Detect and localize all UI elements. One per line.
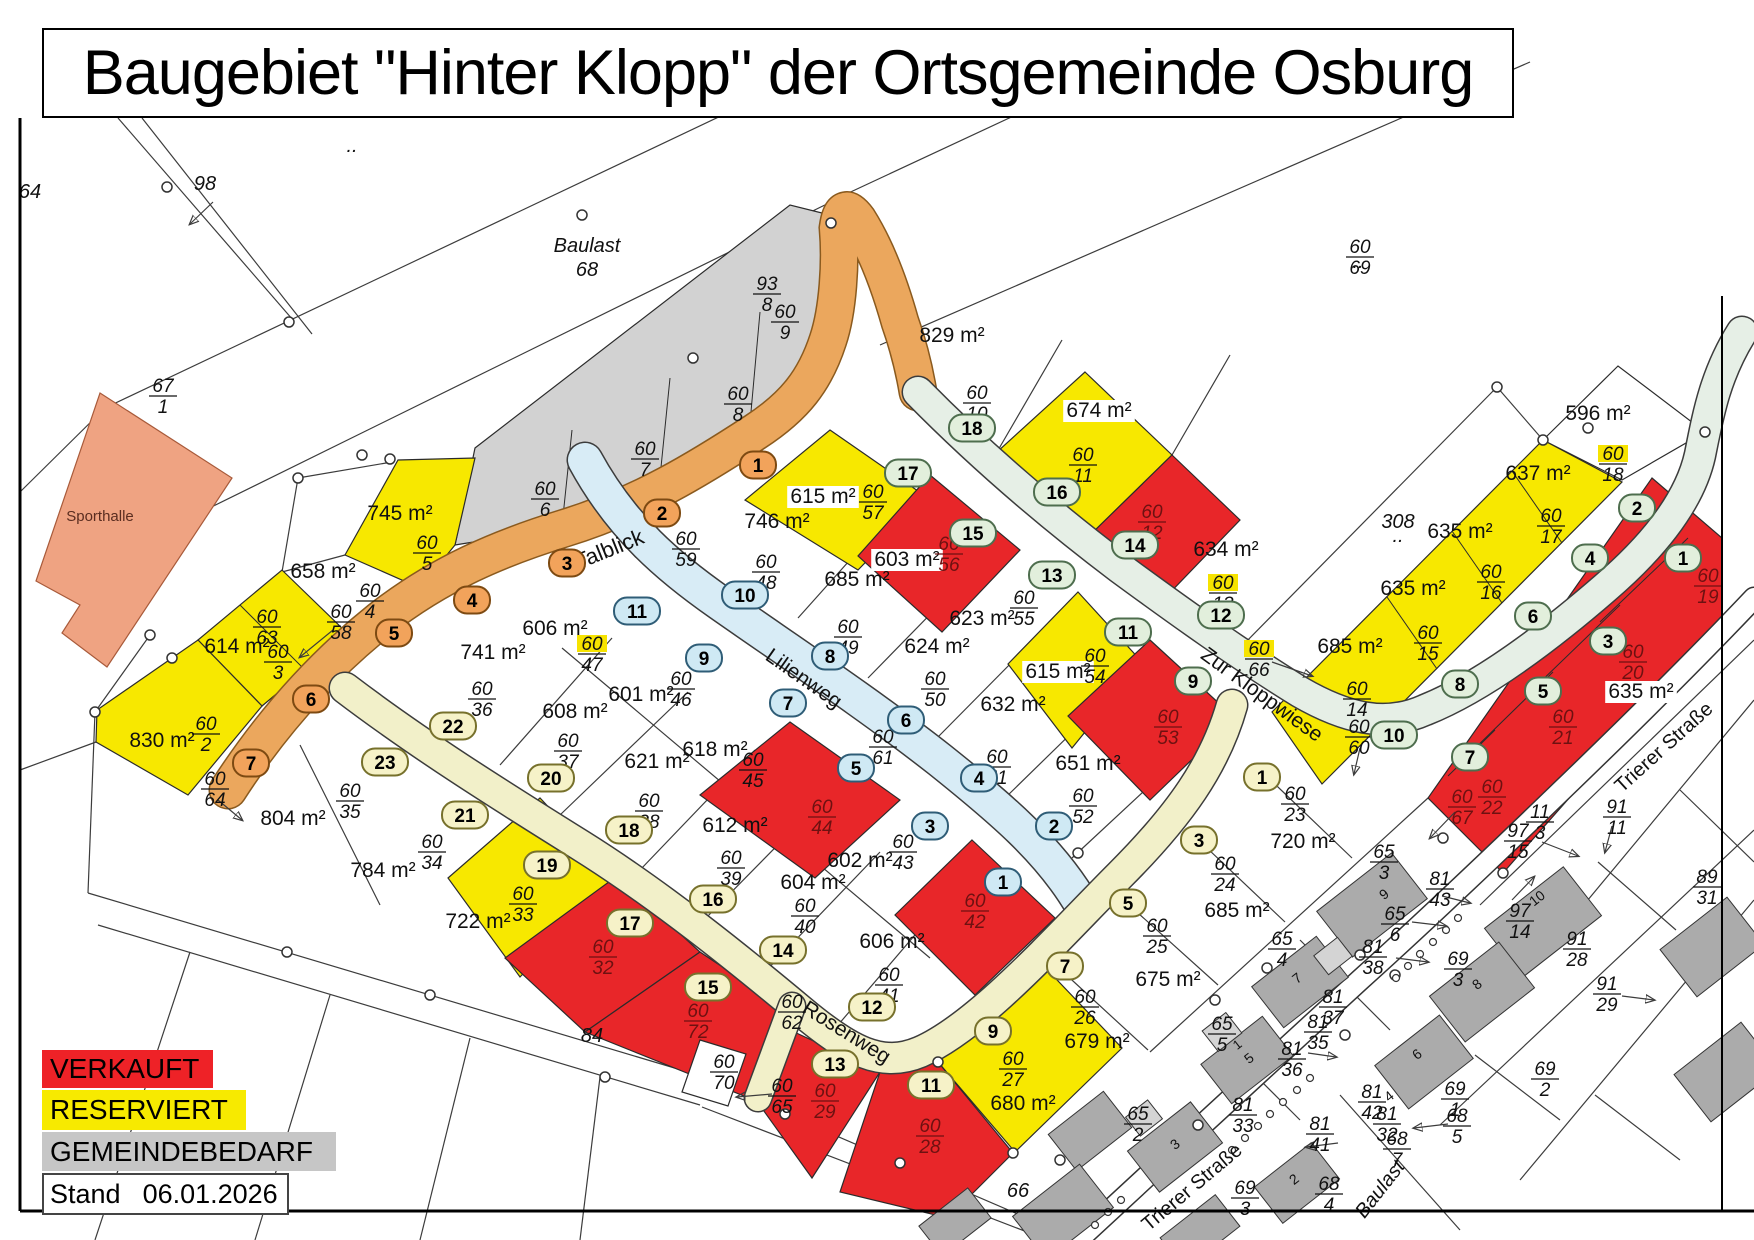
parcel-number-60-57: 6057 bbox=[859, 482, 887, 524]
svg-text:81: 81 bbox=[1281, 1039, 1302, 1060]
parcel-number-60-17: 6017 bbox=[1537, 506, 1565, 548]
svg-text:22: 22 bbox=[442, 717, 463, 738]
parcel-number-60-29: 6029 bbox=[811, 1081, 839, 1123]
parcel-number-60-43: 6043 bbox=[889, 832, 917, 874]
svg-text:60: 60 bbox=[675, 529, 697, 550]
svg-text:81: 81 bbox=[1362, 937, 1383, 958]
svg-text:81: 81 bbox=[1429, 869, 1450, 890]
house-number-badge-rosenweg-16: 16 bbox=[690, 886, 736, 913]
legend-reserviert-label: RESERVIERT bbox=[50, 1094, 228, 1126]
area-label: 745 m² bbox=[367, 502, 432, 525]
house-number-badge-rosenweg-9: 9 bbox=[975, 1018, 1011, 1045]
map-label: Sporthalle bbox=[66, 508, 134, 525]
house-number-badge-kloppwiese-1: 1 bbox=[1665, 545, 1701, 572]
svg-text:635 m²: 635 m² bbox=[1380, 577, 1445, 600]
svg-text:21: 21 bbox=[454, 806, 476, 827]
svg-text:60: 60 bbox=[534, 479, 556, 500]
svg-text:9: 9 bbox=[699, 649, 710, 670]
svg-text:32: 32 bbox=[592, 958, 614, 979]
house-number-badge-kloppwiese-10: 10 bbox=[1371, 722, 1417, 749]
area-label: 635 m² bbox=[1427, 520, 1492, 543]
svg-text:34: 34 bbox=[421, 853, 442, 874]
map-label: .. bbox=[1352, 251, 1363, 273]
parcel-number-60-52: 6052 bbox=[1069, 786, 1097, 828]
svg-text:17: 17 bbox=[897, 464, 918, 485]
area-label: 679 m² bbox=[1064, 1030, 1129, 1053]
svg-text:2: 2 bbox=[1132, 1125, 1144, 1146]
svg-text:60: 60 bbox=[811, 797, 833, 818]
svg-text:70: 70 bbox=[713, 1073, 735, 1094]
svg-text:25: 25 bbox=[1145, 937, 1168, 958]
svg-text:91: 91 bbox=[1606, 797, 1627, 818]
svg-text:15: 15 bbox=[1417, 644, 1439, 665]
area-label: 602 m² bbox=[827, 849, 892, 872]
svg-text:612 m²: 612 m² bbox=[702, 814, 767, 837]
area-label: 651 m² bbox=[1055, 752, 1120, 775]
svg-text:12: 12 bbox=[1210, 606, 1231, 627]
area-label: 720 m² bbox=[1270, 830, 1335, 853]
svg-text:5: 5 bbox=[1452, 1127, 1463, 1148]
svg-text:11: 11 bbox=[1118, 623, 1139, 644]
svg-text:69: 69 bbox=[1234, 1178, 1256, 1199]
svg-text:65: 65 bbox=[771, 1097, 793, 1118]
svg-text:1: 1 bbox=[158, 397, 169, 418]
area-label: 784 m² bbox=[350, 859, 415, 882]
parcel-number-60-33: 6033 bbox=[509, 884, 537, 926]
house-number-badge-talblick-6: 6 bbox=[293, 686, 329, 713]
legend-verkauft: VERKAUFT bbox=[42, 1050, 213, 1088]
house-number-badge-kloppwiese-7: 7 bbox=[1452, 744, 1488, 771]
house-number-badge-kloppwiese-17: 17 bbox=[885, 460, 931, 487]
area-label: 658 m² bbox=[290, 560, 355, 583]
parcel-number-81-36: 8136 bbox=[1278, 1039, 1306, 1081]
svg-text:60: 60 bbox=[771, 1076, 793, 1097]
svg-text:606 m²: 606 m² bbox=[859, 930, 924, 953]
svg-text:22: 22 bbox=[1480, 798, 1503, 819]
svg-text:68: 68 bbox=[1318, 1174, 1340, 1195]
svg-text:60: 60 bbox=[1157, 707, 1179, 728]
svg-text:745 m²: 745 m² bbox=[367, 502, 432, 525]
svg-text:50: 50 bbox=[924, 690, 946, 711]
area-label: 685 m² bbox=[1317, 635, 1382, 658]
svg-text:91: 91 bbox=[1566, 929, 1587, 950]
parcel-number-97-15: 9715 bbox=[1504, 821, 1532, 863]
svg-text:60: 60 bbox=[1602, 444, 1624, 465]
svg-text:15: 15 bbox=[962, 524, 984, 545]
svg-text:60: 60 bbox=[966, 383, 988, 404]
parcel-number-60-34: 6034 bbox=[418, 832, 446, 874]
svg-text:97: 97 bbox=[1507, 821, 1530, 842]
svg-text:27: 27 bbox=[1001, 1070, 1025, 1091]
svg-text:18: 18 bbox=[961, 419, 982, 440]
svg-text:91: 91 bbox=[1596, 974, 1617, 995]
status-date-box: Stand 06.01.2026 bbox=[42, 1173, 289, 1215]
svg-text:11: 11 bbox=[921, 1076, 942, 1097]
house-number-badge-rosenweg-15: 15 bbox=[685, 974, 731, 1001]
parcel-number-60-14: 6014 bbox=[1343, 679, 1371, 721]
svg-text:81: 81 bbox=[1232, 1095, 1253, 1116]
svg-text:9: 9 bbox=[1188, 672, 1199, 693]
house-number-badge-rosenweg-17: 17 bbox=[607, 910, 653, 937]
area-label: 621 m² bbox=[624, 750, 689, 773]
parcel-number-60-50: 6050 bbox=[921, 669, 949, 711]
house-number-badge-rosenweg-18: 18 bbox=[606, 817, 652, 844]
svg-text:14: 14 bbox=[1346, 700, 1367, 721]
area-label: 722 m² bbox=[445, 910, 510, 933]
svg-text:19: 19 bbox=[1697, 587, 1719, 608]
house-number-badge-rosenweg-1: 1 bbox=[1244, 764, 1280, 791]
parcel-number-81-33: 8133 bbox=[1229, 1095, 1257, 1137]
svg-text:60: 60 bbox=[837, 617, 859, 638]
svg-text:596 m²: 596 m² bbox=[1565, 402, 1630, 425]
parcel-number-60-72: 6072 bbox=[684, 1001, 712, 1043]
svg-text:2: 2 bbox=[1632, 499, 1643, 520]
svg-text:16: 16 bbox=[1046, 483, 1067, 504]
svg-text:60: 60 bbox=[204, 769, 226, 790]
svg-text:13: 13 bbox=[1041, 566, 1062, 587]
svg-text:16: 16 bbox=[702, 890, 723, 911]
svg-text:1: 1 bbox=[998, 873, 1009, 894]
svg-text:60: 60 bbox=[256, 607, 278, 628]
legend-reserviert: RESERVIERT bbox=[42, 1090, 246, 1130]
stand-date: 06.01.2026 bbox=[143, 1179, 278, 1210]
house-number-badge-kloppwiese-13: 13 bbox=[1029, 562, 1075, 589]
svg-text:722 m²: 722 m² bbox=[445, 910, 510, 933]
svg-text:60: 60 bbox=[1248, 639, 1270, 660]
parcel-number-60-53: 6053 bbox=[1154, 707, 1182, 749]
svg-text:8: 8 bbox=[733, 405, 744, 426]
svg-text:10: 10 bbox=[1383, 726, 1404, 747]
svg-text:16: 16 bbox=[1480, 583, 1502, 604]
parcel-number-81-38: 8138 bbox=[1359, 937, 1387, 979]
svg-text:93: 93 bbox=[756, 274, 778, 295]
svg-text:4: 4 bbox=[974, 769, 985, 790]
svg-text:54: 54 bbox=[1084, 667, 1105, 688]
svg-text:62: 62 bbox=[781, 1013, 803, 1034]
area-label: 606 m² bbox=[859, 930, 924, 953]
svg-text:634 m²: 634 m² bbox=[1193, 538, 1258, 561]
svg-text:89: 89 bbox=[1696, 867, 1718, 888]
svg-text:65: 65 bbox=[1373, 842, 1395, 863]
svg-text:46: 46 bbox=[670, 690, 692, 711]
svg-text:81: 81 bbox=[1322, 987, 1343, 1008]
svg-text:61: 61 bbox=[872, 748, 893, 769]
svg-text:60: 60 bbox=[794, 896, 816, 917]
svg-text:11: 11 bbox=[1607, 818, 1627, 839]
svg-text:47: 47 bbox=[581, 655, 604, 676]
svg-text:2: 2 bbox=[1539, 1080, 1551, 1101]
svg-text:38: 38 bbox=[1362, 958, 1384, 979]
svg-text:1: 1 bbox=[1678, 549, 1689, 570]
svg-text:35: 35 bbox=[339, 802, 361, 823]
house-number-badge-kloppwiese-16: 16 bbox=[1034, 479, 1080, 506]
parcel-number-60-55: 6055 bbox=[1010, 588, 1038, 630]
svg-text:23: 23 bbox=[374, 753, 395, 774]
svg-text:60: 60 bbox=[557, 731, 579, 752]
svg-text:66: 66 bbox=[1248, 660, 1270, 681]
house-number-badge-rosenweg-3: 3 bbox=[1181, 827, 1217, 854]
svg-text:675 m²: 675 m² bbox=[1135, 968, 1200, 991]
svg-text:8: 8 bbox=[825, 647, 836, 668]
house-number-badge-lilienweg-6: 6 bbox=[888, 707, 924, 734]
house-number-badge-rosenweg-23: 23 bbox=[362, 749, 408, 776]
svg-text:67: 67 bbox=[1451, 808, 1474, 829]
area-label: 635 m² bbox=[1380, 577, 1445, 600]
area-label: 603 m² bbox=[871, 548, 943, 571]
svg-text:81: 81 bbox=[1307, 1012, 1328, 1033]
svg-text:81: 81 bbox=[1309, 1114, 1330, 1135]
house-number-badge-lilienweg-8: 8 bbox=[812, 643, 848, 670]
area-label: 741 m² bbox=[460, 641, 525, 664]
area-label: 608 m² bbox=[542, 700, 607, 723]
map-label: 68 bbox=[576, 259, 598, 281]
svg-text:5: 5 bbox=[1123, 894, 1134, 915]
parcel-number-60-25: 6025 bbox=[1143, 916, 1171, 958]
svg-text:60: 60 bbox=[774, 302, 796, 323]
svg-text:5: 5 bbox=[851, 759, 862, 780]
parcel-number-60-15: 6015 bbox=[1414, 623, 1442, 665]
area-label: 615 m² bbox=[787, 485, 859, 508]
svg-text:635 m²: 635 m² bbox=[1427, 520, 1492, 543]
svg-text:40: 40 bbox=[794, 917, 816, 938]
svg-text:67: 67 bbox=[152, 376, 175, 397]
svg-text:41: 41 bbox=[1309, 1135, 1330, 1156]
parcel-number-60-39: 6039 bbox=[717, 848, 745, 890]
svg-text:42: 42 bbox=[964, 912, 986, 933]
area-label: 680 m² bbox=[990, 1092, 1055, 1115]
parcel-number-60-40: 6040 bbox=[791, 896, 819, 938]
plan-title-bar: Baugebiet "Hinter Klopp" der Ortsgemeind… bbox=[42, 28, 1514, 118]
map-label: 98 bbox=[194, 173, 216, 195]
house-number-badge-kloppwiese-4: 4 bbox=[1572, 545, 1608, 572]
house-number-badge-kloppwiese-15: 15 bbox=[950, 520, 996, 547]
svg-text:60: 60 bbox=[924, 669, 946, 690]
svg-text:60: 60 bbox=[195, 714, 217, 735]
svg-text:60: 60 bbox=[814, 1081, 836, 1102]
svg-text:746 m²: 746 m² bbox=[744, 510, 809, 533]
svg-text:10: 10 bbox=[734, 586, 755, 607]
svg-text:60: 60 bbox=[727, 384, 749, 405]
svg-text:615 m²: 615 m² bbox=[790, 485, 855, 508]
map-label: .. bbox=[1392, 525, 1403, 547]
svg-text:60: 60 bbox=[1540, 506, 1562, 527]
svg-text:60: 60 bbox=[581, 634, 603, 655]
svg-text:68: 68 bbox=[1386, 1129, 1408, 1150]
svg-text:18: 18 bbox=[618, 821, 639, 842]
svg-text:60: 60 bbox=[1072, 786, 1094, 807]
house-number-badge-kloppwiese-18: 18 bbox=[949, 415, 995, 442]
svg-text:33: 33 bbox=[512, 905, 534, 926]
area-label: 596 m² bbox=[1565, 402, 1630, 425]
house-number-badge-rosenweg-22: 22 bbox=[430, 713, 476, 740]
svg-text:4: 4 bbox=[365, 602, 376, 623]
parcel-number-97-14: 9714 bbox=[1506, 901, 1534, 943]
svg-text:7: 7 bbox=[246, 754, 257, 775]
svg-text:60: 60 bbox=[1697, 566, 1719, 587]
map-label: 84 bbox=[581, 1025, 603, 1047]
svg-text:33: 33 bbox=[1232, 1116, 1254, 1137]
cadastral-map: TalblickLilienwegZur KloppwieseRosenwegT… bbox=[0, 0, 1754, 1240]
svg-text:2: 2 bbox=[200, 735, 212, 756]
svg-text:60: 60 bbox=[1346, 679, 1368, 700]
area-label: 634 m² bbox=[1193, 538, 1258, 561]
parcel-number-91-29: 9129 bbox=[1593, 974, 1621, 1016]
svg-text:7: 7 bbox=[640, 460, 652, 481]
parcel-number-60-27: 6027 bbox=[999, 1049, 1027, 1091]
plan-title: Baugebiet "Hinter Klopp" der Ortsgemeind… bbox=[83, 37, 1474, 109]
svg-text:741 m²: 741 m² bbox=[460, 641, 525, 664]
house-number-badge-rosenweg-7: 7 bbox=[1047, 953, 1083, 980]
svg-text:674 m²: 674 m² bbox=[1066, 399, 1131, 422]
parcel-number-60-28: 6028 bbox=[916, 1116, 944, 1158]
svg-text:55: 55 bbox=[1013, 609, 1035, 630]
parcel-number-60-32: 6032 bbox=[589, 937, 617, 979]
svg-text:59: 59 bbox=[675, 550, 697, 571]
parcel-number-60-64: 6064 bbox=[201, 769, 229, 811]
svg-text:60: 60 bbox=[781, 992, 803, 1013]
svg-text:28: 28 bbox=[1565, 950, 1588, 971]
area-label: 601 m² bbox=[608, 683, 673, 706]
legend-gemeindebedarf: GEMEINDEBEDARF bbox=[42, 1132, 336, 1171]
house-number-badge-kloppwiese-2: 2 bbox=[1619, 495, 1655, 522]
map-label: .. bbox=[346, 135, 357, 157]
house-number-badge-rosenweg-5: 5 bbox=[1110, 890, 1146, 917]
svg-text:615 m²: 615 m² bbox=[1025, 660, 1090, 683]
svg-text:69: 69 bbox=[1534, 1059, 1556, 1080]
svg-text:60: 60 bbox=[742, 750, 764, 771]
parcel-number-60-45: 6045 bbox=[739, 750, 767, 792]
parcel-number-60-22: 6022 bbox=[1478, 777, 1506, 819]
svg-text:685 m²: 685 m² bbox=[1317, 635, 1382, 658]
area-label: 632 m² bbox=[980, 693, 1045, 716]
house-number-badge-rosenweg-11: 11 bbox=[908, 1072, 954, 1099]
svg-text:3: 3 bbox=[1379, 863, 1390, 884]
svg-text:13: 13 bbox=[824, 1055, 845, 1076]
parcel-number-60-23: 6023 bbox=[1281, 784, 1309, 826]
area-label: 623 m² bbox=[949, 607, 1014, 630]
svg-text:60: 60 bbox=[720, 848, 742, 869]
parcel-number-60-21: 6021 bbox=[1549, 707, 1577, 749]
svg-text:60: 60 bbox=[919, 1116, 941, 1137]
svg-text:623 m²: 623 m² bbox=[949, 607, 1014, 630]
parcel-number-60-24: 6024 bbox=[1211, 854, 1239, 896]
svg-text:804 m²: 804 m² bbox=[260, 807, 325, 830]
area-label: 829 m² bbox=[919, 324, 984, 347]
parcel-number-60-19: 6019 bbox=[1694, 566, 1722, 608]
svg-text:680 m²: 680 m² bbox=[990, 1092, 1055, 1115]
svg-text:60: 60 bbox=[1146, 916, 1168, 937]
house-number-badge-rosenweg-21: 21 bbox=[442, 802, 488, 829]
svg-text:60: 60 bbox=[267, 642, 289, 663]
svg-text:60: 60 bbox=[1480, 562, 1502, 583]
svg-text:58: 58 bbox=[330, 623, 352, 644]
svg-text:14: 14 bbox=[772, 941, 794, 962]
parcel-number-60-46: 6046 bbox=[667, 669, 695, 711]
svg-text:31: 31 bbox=[1696, 888, 1717, 909]
parcel-number-60-36: 6036 bbox=[468, 679, 496, 721]
svg-text:69: 69 bbox=[1447, 949, 1469, 970]
parcel-number-60-26: 6026 bbox=[1071, 987, 1099, 1029]
legend-verkauft-label: VERKAUFT bbox=[50, 1053, 199, 1085]
svg-text:4: 4 bbox=[467, 591, 478, 612]
svg-text:60: 60 bbox=[1002, 1049, 1024, 1070]
parcel-number-81-42: 8142 bbox=[1358, 1082, 1386, 1124]
svg-text:60: 60 bbox=[1072, 445, 1094, 466]
svg-text:60: 60 bbox=[892, 832, 914, 853]
svg-text:60: 60 bbox=[471, 679, 493, 700]
house-number-badge-kloppwiese-8: 8 bbox=[1442, 671, 1478, 698]
svg-text:608 m²: 608 m² bbox=[542, 700, 607, 723]
house-number-badge-kloppwiese-11: 11 bbox=[1105, 619, 1151, 646]
area-label: 830 m² bbox=[129, 729, 194, 752]
svg-text:60: 60 bbox=[592, 937, 614, 958]
svg-text:3: 3 bbox=[925, 817, 936, 838]
svg-text:65: 65 bbox=[1271, 929, 1293, 950]
svg-text:43: 43 bbox=[1429, 890, 1451, 911]
parcel-number-91-11: 9111 bbox=[1603, 797, 1631, 839]
svg-text:603 m²: 603 m² bbox=[874, 548, 939, 571]
parcel-number-81-43: 8143 bbox=[1426, 869, 1454, 911]
svg-text:20: 20 bbox=[540, 769, 561, 790]
svg-text:60: 60 bbox=[330, 602, 352, 623]
area-label: 624 m² bbox=[904, 635, 969, 658]
area-label: 685 m² bbox=[1204, 899, 1269, 922]
svg-text:28: 28 bbox=[918, 1137, 941, 1158]
house-number-badge-lilienweg-1: 1 bbox=[985, 869, 1021, 896]
parcel-number-60-47: 6047 bbox=[577, 634, 607, 676]
svg-text:9: 9 bbox=[780, 323, 791, 344]
svg-text:1: 1 bbox=[1450, 1100, 1461, 1121]
svg-text:60: 60 bbox=[1013, 588, 1035, 609]
svg-text:9: 9 bbox=[988, 1022, 999, 1043]
svg-text:60: 60 bbox=[1074, 987, 1096, 1008]
svg-text:3: 3 bbox=[1453, 970, 1464, 991]
parcel-number-60-65: 6065 bbox=[768, 1076, 796, 1118]
svg-text:6: 6 bbox=[1390, 925, 1401, 946]
svg-text:7: 7 bbox=[783, 694, 794, 715]
parcel-number-60-60: 6060 bbox=[1345, 717, 1373, 759]
house-number-badge-talblick-3: 3 bbox=[549, 550, 585, 577]
svg-text:8: 8 bbox=[1455, 675, 1466, 696]
svg-text:60: 60 bbox=[638, 791, 660, 812]
svg-text:5: 5 bbox=[1217, 1035, 1228, 1056]
svg-text:60: 60 bbox=[878, 965, 900, 986]
svg-text:60: 60 bbox=[755, 552, 777, 573]
svg-text:5: 5 bbox=[422, 554, 433, 575]
svg-text:6: 6 bbox=[306, 690, 317, 711]
svg-text:18: 18 bbox=[1602, 465, 1624, 486]
svg-text:14: 14 bbox=[1124, 536, 1146, 557]
parcel-number-60-54: 6054 bbox=[1081, 646, 1109, 688]
svg-text:6: 6 bbox=[1528, 607, 1539, 628]
svg-text:3: 3 bbox=[562, 554, 573, 575]
svg-text:44: 44 bbox=[811, 818, 832, 839]
svg-text:685 m²: 685 m² bbox=[824, 568, 889, 591]
house-number-badge-kloppwiese-12: 12 bbox=[1198, 602, 1244, 629]
parcel-number-60-18: 6018 bbox=[1598, 444, 1628, 486]
house-number-badge-lilienweg-11: 11 bbox=[614, 598, 660, 625]
svg-text:65: 65 bbox=[1211, 1014, 1233, 1035]
area-label: 804 m² bbox=[260, 807, 325, 830]
house-number-badge-kloppwiese-3: 3 bbox=[1590, 628, 1626, 655]
svg-text:720 m²: 720 m² bbox=[1270, 830, 1335, 853]
svg-text:60: 60 bbox=[1417, 623, 1439, 644]
svg-text:2: 2 bbox=[657, 504, 668, 525]
svg-text:36: 36 bbox=[1281, 1060, 1303, 1081]
svg-text:60: 60 bbox=[339, 781, 361, 802]
svg-text:81: 81 bbox=[1361, 1082, 1382, 1103]
svg-text:60: 60 bbox=[359, 581, 381, 602]
